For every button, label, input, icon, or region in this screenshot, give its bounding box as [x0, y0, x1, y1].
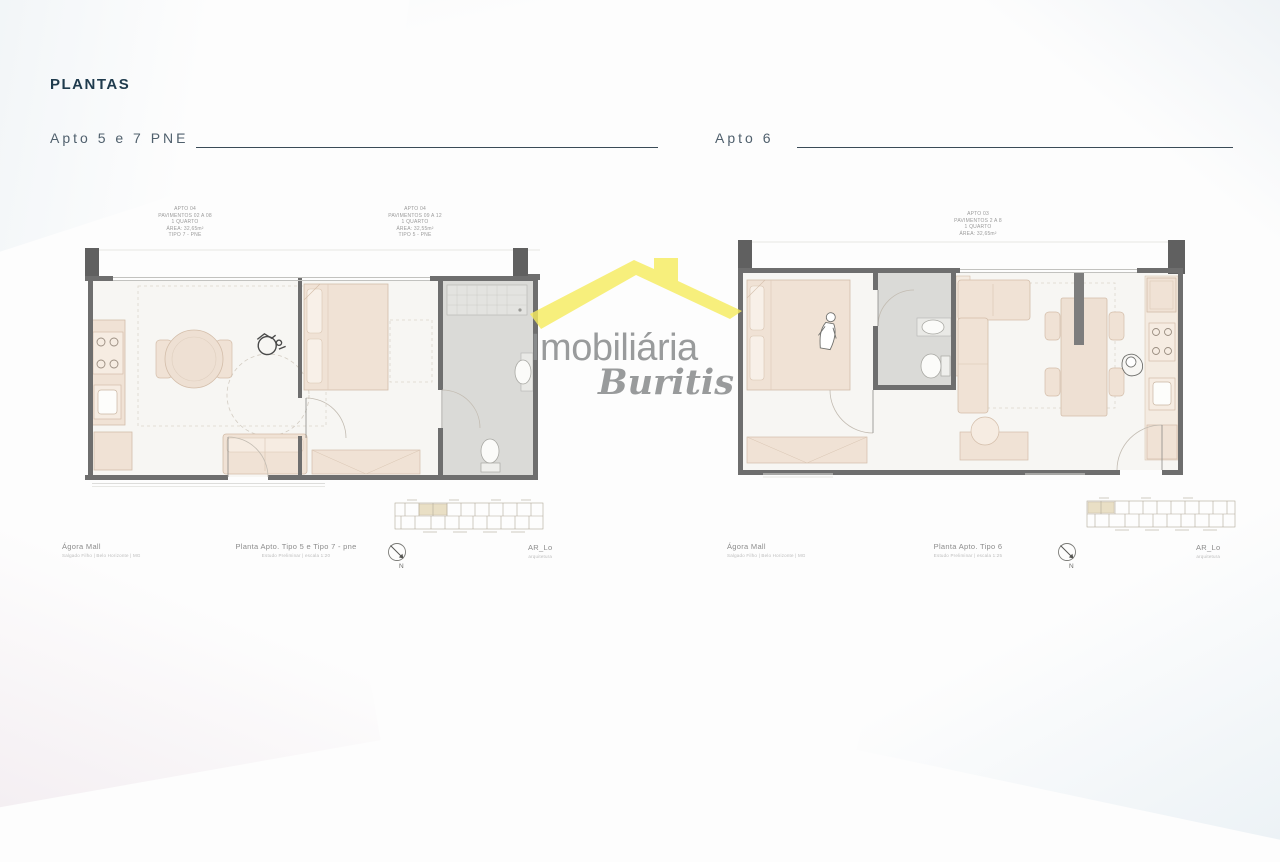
window: [960, 270, 1137, 273]
chair: [1045, 368, 1060, 396]
toilet-icon: [481, 439, 500, 472]
kitchen-counter: [90, 320, 125, 425]
annotation-line: TIPO 7 - PNE: [120, 232, 250, 239]
window: [113, 278, 430, 281]
page-title: PLANTAS: [50, 76, 130, 93]
project-subtitle: Salgado Filho | Belo Horizonte | MG: [727, 553, 806, 558]
brand-watermark: Imobiliária Buritis: [530, 256, 750, 403]
project-name: Ágora Mall: [727, 542, 806, 551]
left-keyplan: [393, 496, 547, 538]
keyplan-units: [395, 500, 543, 532]
north-compass-icon: N: [386, 541, 408, 571]
wardrobe: [312, 450, 420, 474]
pillow: [307, 339, 322, 383]
right-firm-caption: AR_Lo arquitetura: [1196, 543, 1220, 559]
side-table: [971, 417, 999, 445]
toilet-icon: [921, 354, 950, 378]
right-floorplan-drawing: [725, 228, 1195, 482]
terrace-lines: [92, 484, 325, 487]
chair: [1109, 312, 1124, 340]
sink-icon: [98, 390, 117, 414]
pillow: [307, 289, 322, 333]
pillow: [750, 336, 764, 380]
chair: [1109, 368, 1124, 396]
project-name: Ágora Mall: [62, 542, 141, 551]
wardrobe: [747, 437, 867, 463]
left-project-caption: Ágora Mall Salgado Filho | Belo Horizont…: [62, 542, 141, 558]
kitchen-counter: [1145, 276, 1178, 460]
project-subtitle: Salgado Filho | Belo Horizonte | MG: [62, 553, 141, 558]
drawing-title: Planta Apto. Tipo 6: [888, 542, 1048, 551]
north-label: N: [1069, 563, 1074, 570]
background-streak-top-center: [401, 0, 1018, 139]
north-label: N: [399, 563, 404, 570]
house-roof-icon: [530, 256, 745, 332]
drawing-subtitle: Estudo Preliminar | escala 1:20: [216, 553, 376, 558]
right-keyplan: [1085, 494, 1239, 536]
washbasin-icon: [917, 318, 951, 336]
chair: [1045, 312, 1060, 340]
shower: [447, 285, 527, 315]
fridge-icon: [1147, 278, 1176, 312]
firm-subtitle: arquitetura: [1196, 554, 1220, 559]
right-plan-title: Apto 6: [715, 130, 773, 146]
brand-name-line2: Buritis: [598, 362, 750, 403]
left-title-rule: [196, 147, 658, 148]
fridge-icon: [94, 432, 132, 470]
firm-subtitle: arquitetura: [528, 554, 552, 559]
left-firm-caption: AR_Lo arquitetura: [528, 543, 552, 559]
left-drawing-caption: Planta Apto. Tipo 5 e Tipo 7 - pne Estud…: [216, 542, 376, 558]
bed: [304, 284, 388, 390]
right-drawing-caption: Planta Apto. Tipo 6 Estudo Preliminar | …: [888, 542, 1048, 558]
left-plan-title: Apto 5 e 7 PNE: [50, 130, 189, 146]
sofa: [223, 434, 307, 474]
left-annotation-a: APTO 04 PAVIMENTOS 02 A 08 1 QUARTO ÁREA…: [120, 206, 250, 239]
annotation-line: TIPO 5 - PNE: [350, 232, 480, 239]
right-title-rule: [797, 147, 1233, 148]
right-project-caption: Ágora Mall Salgado Filho | Belo Horizont…: [727, 542, 806, 558]
left-annotation-b: APTO 04 PAVIMENTOS 09 A 12 1 QUARTO ÁREA…: [350, 206, 480, 239]
partition-wall: [1074, 273, 1084, 345]
firm-name: AR_Lo: [528, 543, 552, 552]
drawing-subtitle: Estudo Preliminar | escala 1:25: [888, 553, 1048, 558]
firm-name: AR_Lo: [1196, 543, 1220, 552]
north-compass-icon: N: [1056, 541, 1078, 571]
sink-icon: [1153, 382, 1171, 405]
drawing-title: Planta Apto. Tipo 5 e Tipo 7 - pne: [216, 542, 376, 551]
left-floorplan-drawing: [80, 240, 550, 490]
